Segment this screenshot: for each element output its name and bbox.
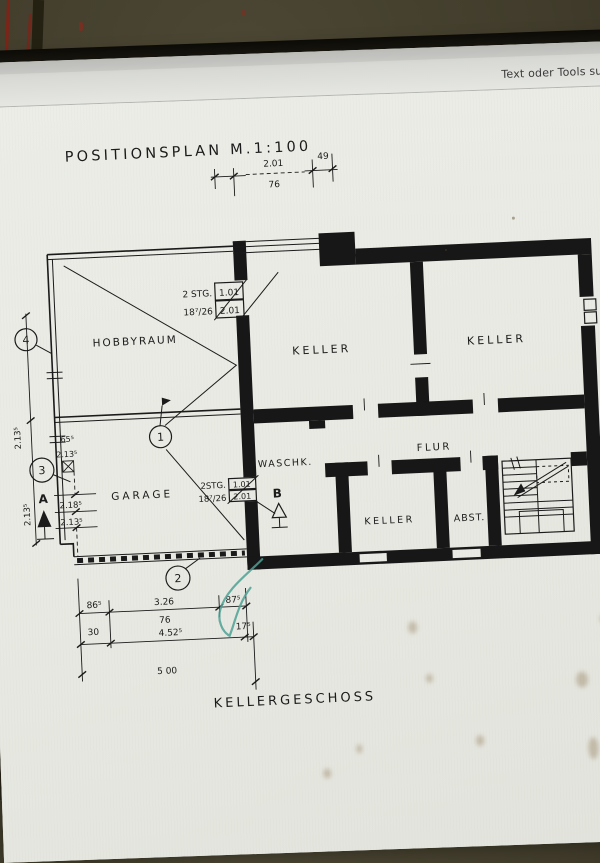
pdf-viewer-screen: Text oder Tools suche POSITIONSPLAN M.1:… — [0, 40, 600, 863]
marker-4-number: 4 — [22, 334, 30, 347]
stair-top-label1: 2 STG. — [182, 289, 212, 300]
search-tools-field[interactable]: Text oder Tools suche — [501, 64, 600, 81]
dim-top-middle: 2.01 — [263, 159, 283, 170]
stair-mid-label1: 2STG. — [200, 481, 226, 492]
room-label-garage: GARAGE — [111, 488, 173, 503]
garage-dimensions: 65⁵ 2.13⁵ 2.18⁵ 2.13⁵ — [51, 434, 98, 558]
dim-left-lower: 2.13⁵ — [22, 503, 33, 526]
stair-mid-box-upper: 1.01 — [233, 480, 251, 490]
stair-top-box-lower: 2.01 — [220, 306, 240, 317]
dim-b2: 3.26 — [154, 597, 175, 608]
stair-top-label2: 18⁷/26 — [183, 307, 213, 318]
room-label-keller-small: KELLER — [364, 514, 415, 527]
left-dimension-chain: 2.13⁵ 2.13⁵ — [8, 313, 41, 548]
position-marker-1: 1 — [148, 397, 173, 448]
room-label-flur: FLUR — [417, 442, 453, 455]
dim-b5: 76 — [159, 615, 171, 626]
stair-top-symbol: 1.01 2.01 2 STG. 18⁷/26 — [182, 272, 281, 321]
document-page[interactable]: POSITIONSPLAN M.1:100 2.01 49 76 — [0, 85, 600, 863]
floor-plan-drawing: POSITIONSPLAN M.1:100 2.01 49 76 — [0, 99, 600, 726]
stair-top-box-upper: 1.01 — [219, 288, 239, 299]
stair-mid-label2: 18⁷/26 — [198, 494, 226, 505]
section-b-label: B — [272, 486, 282, 500]
dim-b1: 86⁵ — [86, 601, 102, 612]
dim-g1: 65⁵ — [60, 435, 74, 445]
dim-g4: 2.13⁵ — [60, 517, 83, 528]
stair-mid-box-lower: 2.01 — [233, 492, 251, 502]
stair-mid-symbol: 1.01 2.01 2STG. 18⁷/26 — [198, 475, 276, 517]
section-a-label: A — [38, 492, 49, 506]
red-speck — [79, 22, 83, 31]
dim-b3: 87⁵ — [225, 595, 241, 606]
room-label-hobbyraum: HOBBYRAUM — [92, 334, 178, 350]
dim-left-upper: 2.13⁵ — [13, 427, 24, 450]
marker-3-number: 3 — [38, 464, 46, 477]
marker-1-number: 1 — [157, 431, 165, 444]
position-marker-2: 2 — [165, 558, 201, 591]
photo-stain — [323, 768, 331, 778]
main-house-walls — [233, 221, 600, 570]
dim-g2: 2.13⁵ — [56, 450, 77, 460]
dim-g3: 2.18⁵ — [59, 500, 82, 511]
dim-top-below: 76 — [268, 180, 280, 191]
photo-speck — [445, 249, 447, 251]
photo-stain — [476, 735, 484, 746]
photo-speck — [512, 217, 515, 220]
dim-b8: 5 00 — [157, 666, 178, 677]
photo-stain — [356, 744, 362, 753]
section-marker-a: A — [35, 492, 54, 540]
red-speck — [241, 10, 246, 16]
room-label-abstellraum: ABST. — [454, 512, 486, 524]
room-label-keller-right: KELLER — [467, 332, 527, 348]
dim-top-right: 49 — [317, 152, 329, 163]
position-marker-4: 4 — [15, 328, 52, 356]
room-label-keller-mid: KELLER — [292, 342, 352, 358]
dim-b4: 30 — [87, 628, 99, 639]
photo-stain — [588, 737, 599, 759]
marker-2-number: 2 — [174, 572, 182, 585]
dim-b6: 4.52⁵ — [158, 628, 182, 639]
dim-b7: 17⁵ — [236, 622, 252, 633]
staircase — [502, 454, 574, 534]
red-cable — [5, 0, 10, 54]
room-label-waschkueche: WASCHK. — [258, 457, 313, 470]
section-marker-b: B — [270, 486, 288, 528]
floor-title: KELLERGESCHOSS — [213, 689, 376, 711]
